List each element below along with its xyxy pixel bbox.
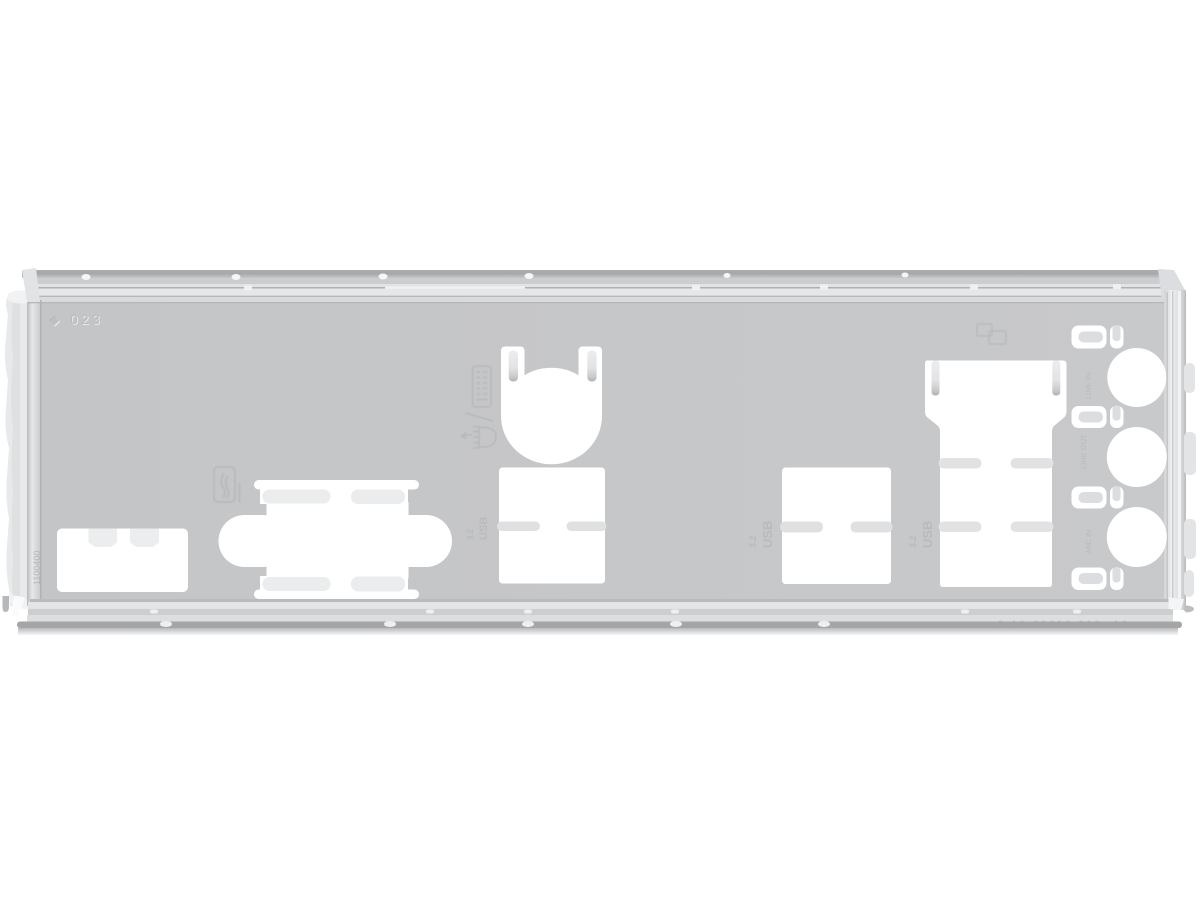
svg-text:USB: USB xyxy=(478,517,490,540)
svg-text:1100400: 1100400 xyxy=(32,551,42,585)
svg-text:◆ 023: ◆ 023 xyxy=(49,312,103,327)
svg-text:LINE IN: LINE IN xyxy=(1084,373,1093,399)
svg-text:USB: USB xyxy=(760,521,775,548)
svg-text:3.2: 3.2 xyxy=(908,535,918,548)
svg-text:MIC IN: MIC IN xyxy=(1084,530,1093,553)
svg-text:3.2: 3.2 xyxy=(466,528,475,540)
svg-text:LINE OUT: LINE OUT xyxy=(1079,434,1088,469)
svg-text:3.2: 3.2 xyxy=(748,535,758,548)
svg-text:3 10 23610 810 ·10: 3 10 23610 810 ·10 xyxy=(998,619,1130,629)
svg-text:USB: USB xyxy=(920,521,935,548)
